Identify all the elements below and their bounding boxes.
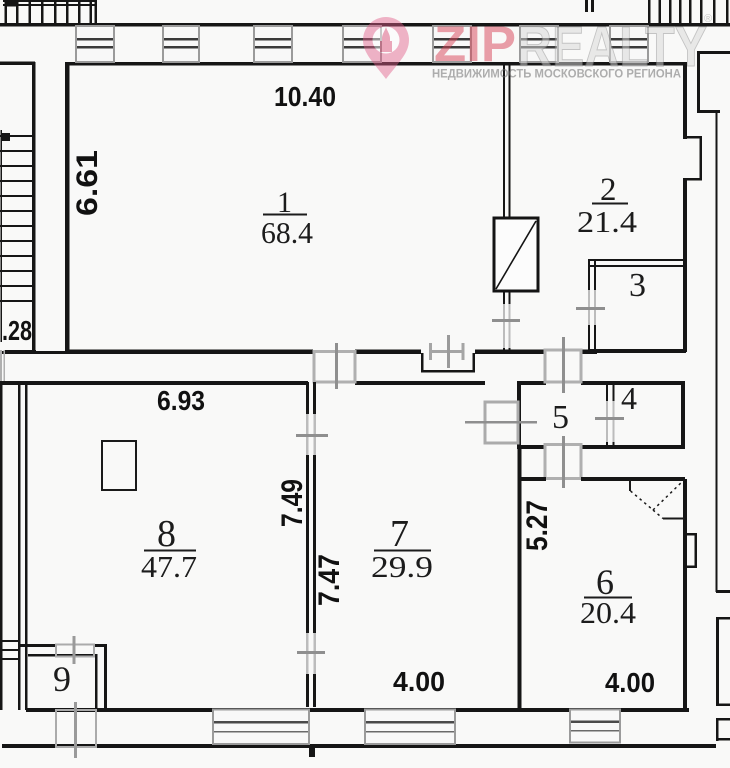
- svg-text:47.7: 47.7: [141, 549, 197, 584]
- svg-text:20.4: 20.4: [580, 595, 637, 630]
- svg-text:4.00: 4.00: [605, 667, 655, 698]
- svg-text:5.27: 5.27: [521, 500, 554, 551]
- svg-text:3: 3: [629, 267, 646, 304]
- svg-text:ZIP: ZIP: [434, 16, 516, 72]
- svg-text:21.4: 21.4: [577, 204, 638, 239]
- svg-text:4: 4: [621, 380, 637, 416]
- svg-text:29.9: 29.9: [371, 549, 433, 584]
- svg-text:4.00: 4.00: [393, 666, 445, 697]
- svg-text:10.40: 10.40: [274, 81, 336, 112]
- svg-text:9: 9: [53, 659, 71, 699]
- svg-text:6.93: 6.93: [157, 385, 205, 416]
- svg-text:68.4: 68.4: [261, 215, 313, 250]
- svg-text:5: 5: [552, 399, 569, 436]
- svg-text:НЕДВИЖИМОСТЬ МОСКОВСКОГО РЕГИО: НЕДВИЖИМОСТЬ МОСКОВСКОГО РЕГИОНА: [432, 69, 681, 81]
- svg-text:.28: .28: [2, 315, 32, 346]
- svg-text:7.49: 7.49: [276, 479, 309, 527]
- svg-text:6.61: 6.61: [71, 150, 104, 216]
- svg-text:7.47: 7.47: [313, 554, 346, 606]
- svg-text:®: ®: [704, 13, 712, 25]
